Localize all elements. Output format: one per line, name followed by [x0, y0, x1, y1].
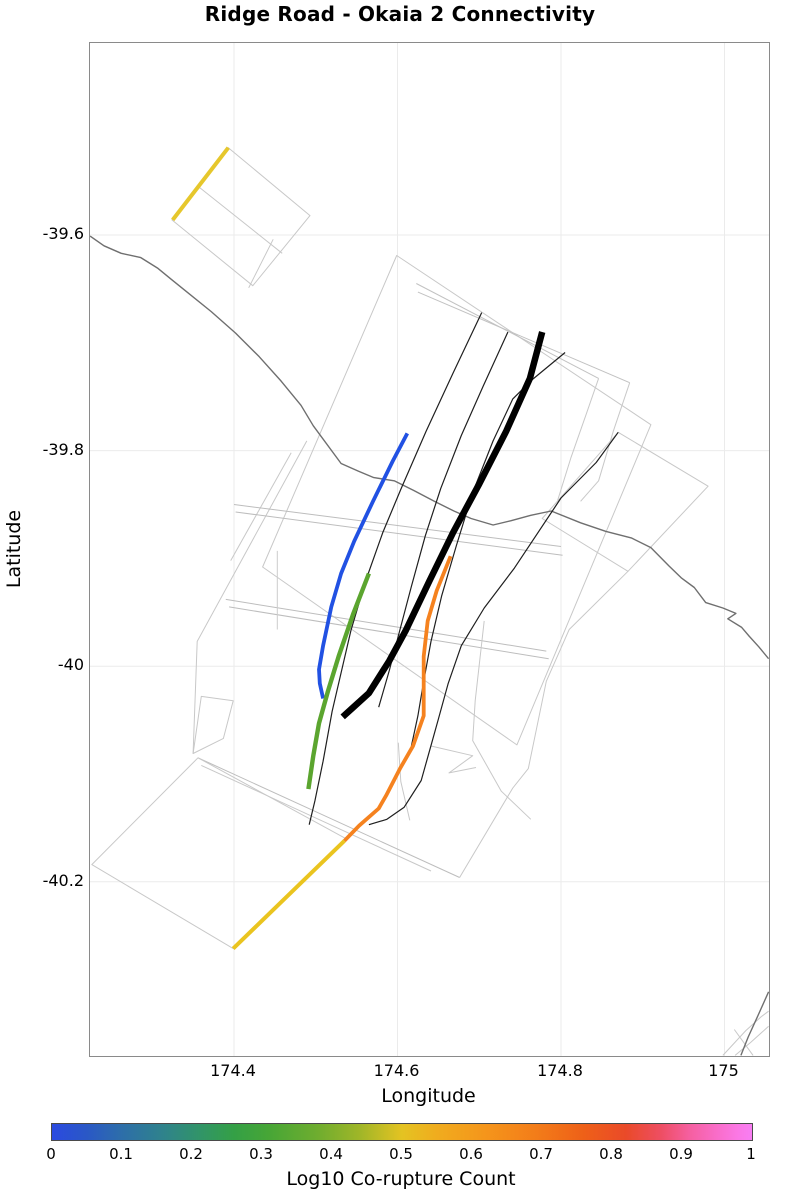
y-axis-label: Latitude	[3, 489, 25, 609]
map-canvas	[90, 43, 769, 1056]
fault-outline-corner-b	[723, 1011, 769, 1055]
colorbar-tick-label: 0.6	[443, 1145, 499, 1163]
y-tick-label: -39.8	[0, 441, 84, 459]
figure: Ridge Road - Okaia 2 Connectivity -39.6-…	[0, 0, 800, 1203]
fault-trace-thin-1	[309, 313, 482, 825]
colorbar-tick-label: 0.1	[93, 1145, 149, 1163]
colorbar-tick-label: 1	[723, 1145, 779, 1163]
fault-outline-lane-bottom-b	[201, 765, 431, 871]
coastline-southeast	[741, 992, 769, 1056]
fault-outline-topleft-divider	[200, 188, 283, 254]
fault-outline-inner-d	[193, 696, 233, 753]
corupture-trace-yellow-north	[173, 148, 229, 220]
fault-outline-lane-bottom-a	[198, 758, 460, 878]
colorbar-tick-label: 0.3	[233, 1145, 289, 1163]
fault-outline-left-strip-b	[231, 453, 292, 561]
colorbar-tick-label: 0.7	[513, 1145, 569, 1163]
fault-outline-left-strip	[193, 441, 307, 754]
fault-outline-bottom-polygon-right	[460, 571, 628, 877]
fault-outline-upper-edge-a	[416, 284, 598, 379]
x-axis-label: Longitude	[89, 1085, 768, 1107]
x-tick-label: 175	[679, 1062, 769, 1080]
fault-outline-inner-c	[431, 746, 476, 773]
fault-outline-right-square	[542, 432, 708, 571]
corupture-trace-yellow-south	[233, 841, 344, 949]
x-tick-label: 174.4	[188, 1062, 278, 1080]
map-plot-area	[89, 42, 770, 1057]
fault-outline-upper-edge-b	[418, 292, 630, 383]
fault-outline-small-edge	[249, 239, 274, 287]
x-tick-label: 174.8	[515, 1062, 605, 1080]
colorbar-gradient	[51, 1123, 753, 1141]
x-tick-label: 174.6	[352, 1062, 442, 1080]
colorbar-tick-label: 0.2	[163, 1145, 219, 1163]
y-tick-label: -40.2	[0, 872, 84, 890]
colorbar-tick-label: 0.8	[583, 1145, 639, 1163]
chart-title: Ridge Road - Okaia 2 Connectivity	[0, 2, 800, 26]
colorbar-tick-label: 0	[23, 1145, 79, 1163]
coastline-main	[90, 236, 769, 659]
fault-outline-lane-upper-b	[236, 512, 563, 555]
colorbar-label: Log10 Co-rupture Count	[51, 1168, 751, 1190]
y-tick-label: -40	[0, 656, 84, 674]
fault-outline-wedge-b	[581, 383, 630, 502]
colorbar-tick-label: 0.5	[373, 1145, 429, 1163]
y-tick-label: -39.6	[0, 225, 84, 243]
fault-trace-main	[343, 332, 543, 717]
fault-outline-wedge-a	[558, 378, 599, 500]
colorbar-tick-label: 0.4	[303, 1145, 359, 1163]
fault-outline-lane-lower-a	[226, 599, 547, 651]
fault-outline-topleft-rect	[172, 148, 310, 286]
colorbar-tick-label: 0.9	[653, 1145, 709, 1163]
